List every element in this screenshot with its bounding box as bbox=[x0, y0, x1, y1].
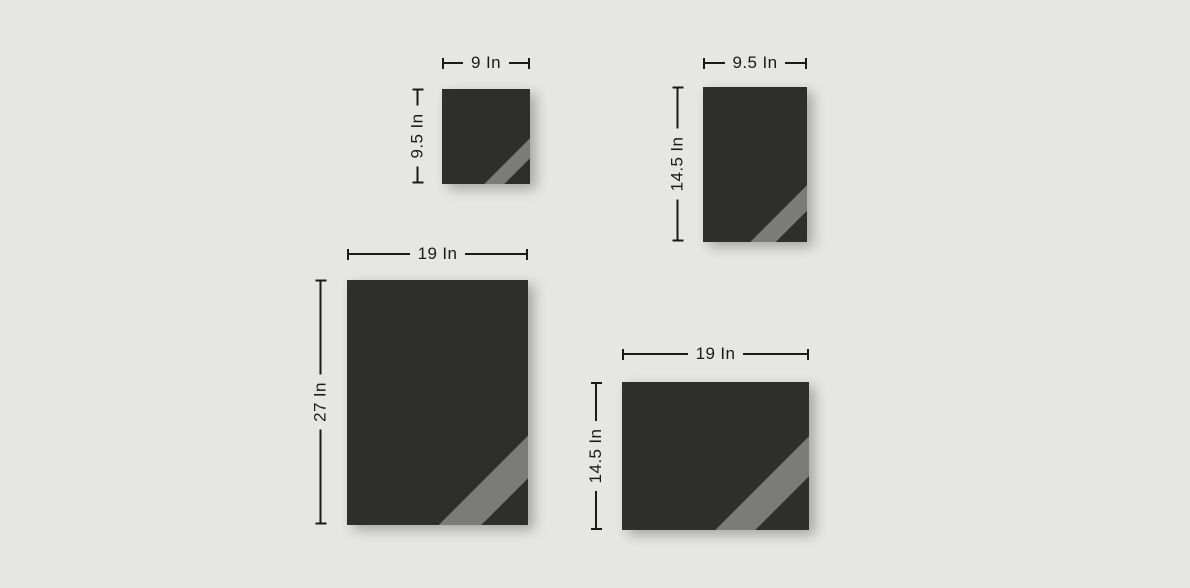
width-dimension: 9.5 In bbox=[703, 51, 807, 75]
width-label: 19 In bbox=[410, 242, 466, 266]
swatch-small-portrait bbox=[703, 87, 807, 242]
height-dimension: 27 In bbox=[309, 280, 333, 525]
tick-cap-bottom bbox=[315, 523, 326, 525]
size-comparison-diagram: 9 In 9.5 In 9.5 In 14.5 In bbox=[0, 0, 1190, 588]
width-dimension: 9 In bbox=[442, 51, 530, 75]
dimension-line bbox=[349, 253, 410, 255]
dimension-line bbox=[677, 88, 679, 128]
height-label: 14.5 In bbox=[584, 421, 608, 492]
dimension-line bbox=[705, 62, 725, 64]
tick-cap-right bbox=[807, 349, 809, 360]
height-label: 14.5 In bbox=[666, 129, 690, 200]
dimension-line bbox=[743, 353, 807, 355]
tick-cap-right bbox=[526, 249, 528, 260]
tick-cap-top bbox=[672, 86, 683, 88]
height-dimension: 9.5 In bbox=[406, 89, 430, 184]
width-label: 9 In bbox=[463, 51, 509, 75]
dimension-line bbox=[320, 430, 322, 523]
tick-cap-top bbox=[591, 382, 602, 384]
dimension-line bbox=[785, 62, 805, 64]
height-label: 9.5 In bbox=[406, 106, 430, 167]
width-label: 9.5 In bbox=[725, 51, 786, 75]
tick-cap-bottom bbox=[591, 528, 602, 530]
height-label: 27 In bbox=[309, 374, 333, 430]
dimension-line bbox=[509, 62, 528, 64]
tick-cap-bottom bbox=[672, 240, 683, 242]
dimension-line bbox=[417, 91, 419, 106]
swatch-wide-landscape bbox=[622, 382, 809, 530]
tick-cap-top bbox=[412, 89, 423, 91]
tick-cap-top bbox=[315, 280, 326, 282]
dimension-line bbox=[417, 166, 419, 181]
width-label: 19 In bbox=[688, 342, 744, 366]
height-dimension: 14.5 In bbox=[666, 87, 690, 242]
height-dimension: 14.5 In bbox=[584, 382, 608, 530]
dimension-line bbox=[595, 384, 597, 421]
dimension-line bbox=[624, 353, 688, 355]
dimension-line bbox=[465, 253, 526, 255]
dimension-line bbox=[320, 282, 322, 375]
dimension-line bbox=[595, 491, 597, 528]
tick-cap-right bbox=[528, 58, 530, 69]
tick-cap-right bbox=[805, 58, 807, 69]
width-dimension: 19 In bbox=[347, 242, 528, 266]
dimension-line bbox=[677, 199, 679, 239]
width-dimension: 19 In bbox=[622, 342, 809, 366]
tick-cap-bottom bbox=[412, 182, 423, 184]
dimension-line bbox=[444, 62, 463, 64]
swatch-small-square bbox=[442, 89, 530, 184]
swatch-large-portrait bbox=[347, 280, 528, 525]
